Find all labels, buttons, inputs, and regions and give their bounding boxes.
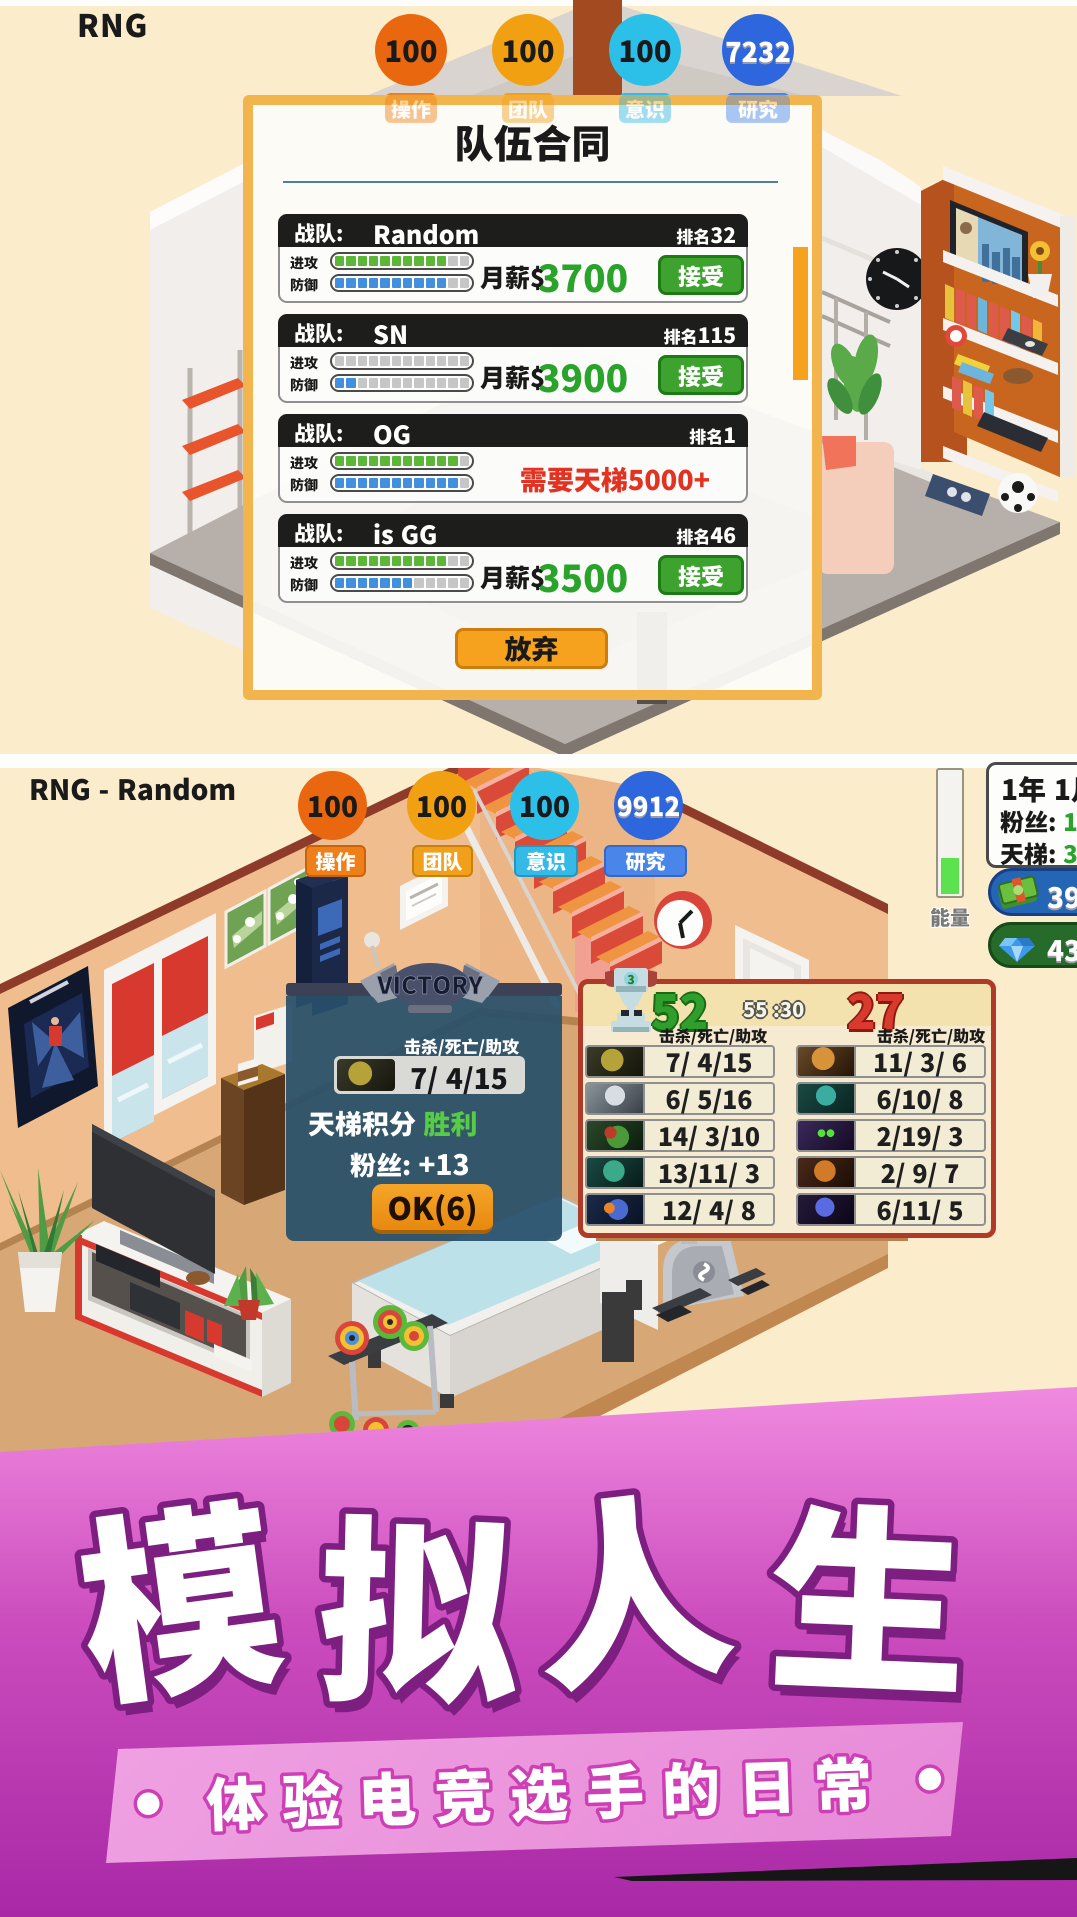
svg-text:模拟人生: 模拟人生: [60, 1412, 1008, 1764]
svg-text:VICTORY: VICTORY: [376, 966, 483, 1001]
svg-text:3: 3: [627, 971, 634, 988]
